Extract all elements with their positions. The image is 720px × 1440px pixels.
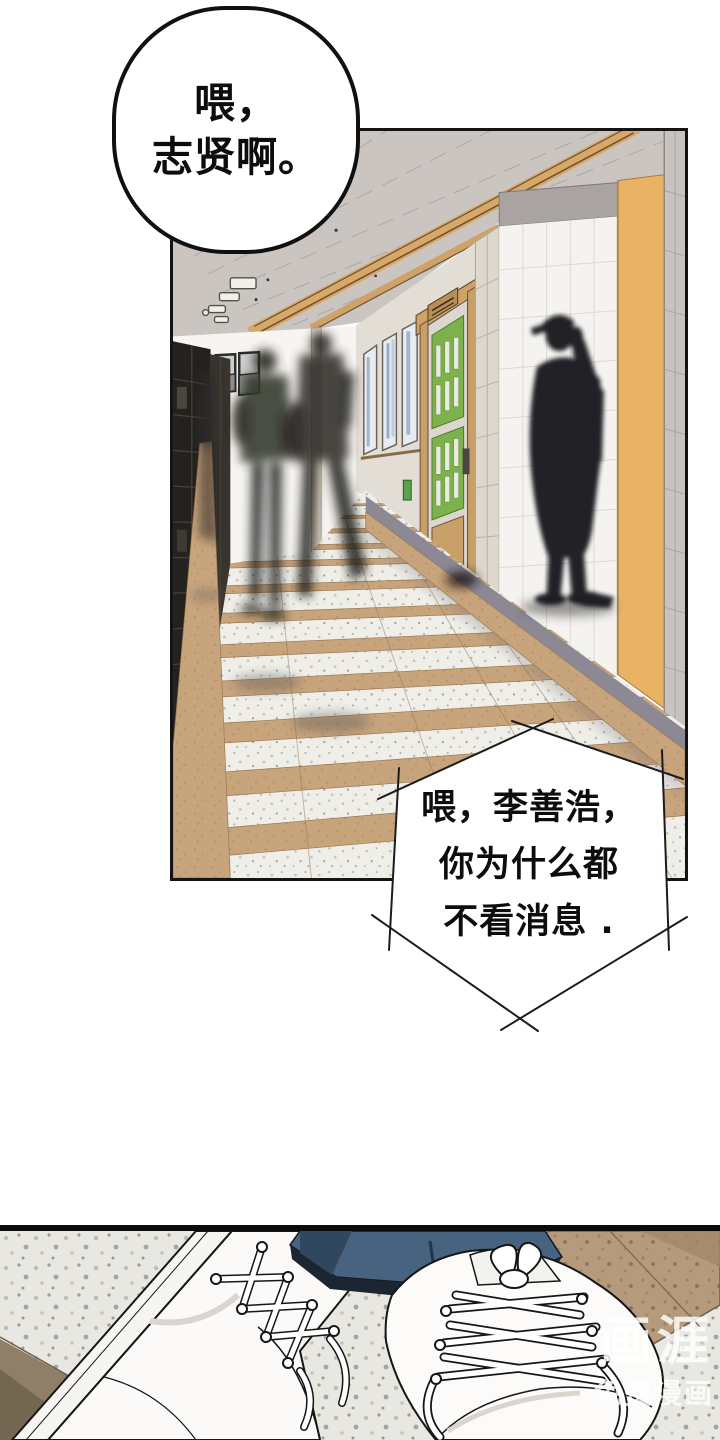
lace-knot xyxy=(500,1270,528,1288)
gray-tile-pillar xyxy=(664,131,685,732)
comic-page: 喂， 志贤啊。 喂，李善浩， 你为什么都 不看消息 . xyxy=(0,0,720,1440)
hex-bubble-shape: 喂，李善浩， 你为什么都 不看消息 . xyxy=(370,715,700,1045)
exit-sign xyxy=(403,480,411,500)
hex-speech-line: 你为什么都 xyxy=(438,845,619,885)
door-handle xyxy=(463,448,470,474)
shoes-panel xyxy=(0,1225,720,1440)
speech-line: 志贤啊。 xyxy=(152,130,320,184)
speech-bubble-hex: 喂，李善浩， 你为什么都 不看消息 . xyxy=(370,715,700,1045)
shoes-scene xyxy=(0,1231,720,1440)
beige-pillar xyxy=(475,226,499,592)
hex-speech-line: 喂，李善浩， xyxy=(421,788,637,828)
speech-bubble-round: 喂， 志贤啊。 xyxy=(112,6,360,254)
hex-speech-line: 不看消息 . xyxy=(443,901,614,942)
orange-pillar xyxy=(618,175,664,709)
speech-line: 喂， xyxy=(194,76,278,130)
